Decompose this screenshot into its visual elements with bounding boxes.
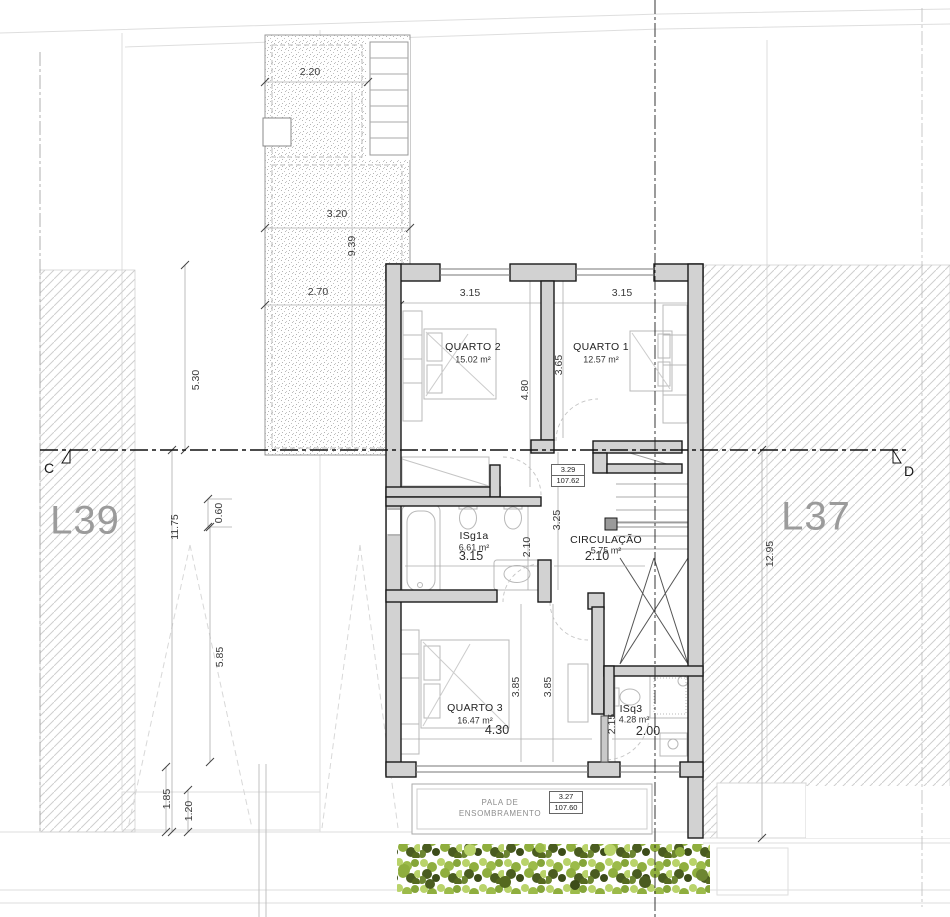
dim-left-5-30: 5.30 [191,370,202,390]
dim-q3-depth1: 3.85 [511,677,522,697]
section-marker-c: C [44,460,54,476]
dim-terrace-length: 9.39 [347,236,358,256]
dim-terrace-width: 2.20 [300,67,320,78]
dim-q3-width: 4.30 [485,724,509,737]
room-label-quarto2: QUARTO 2 [445,342,501,353]
room-area-quarto3: 16.47 m² [457,717,493,726]
floor-plan-drawing [0,0,950,917]
stair-newel-post [605,518,617,530]
lot-label-l39: L39 [50,499,120,544]
section-marker-d: D [904,463,914,479]
room-area-quarto1: 12.57 m² [583,356,619,365]
dim-bath-depth: 2.10 [522,537,533,557]
garden-dashed-marks [128,545,398,828]
level-elevation: 107.60 [550,802,582,813]
floor-plan-page: 2.20 3.20 9.39 2.70 5.30 11.75 0.60 5.85… [0,0,950,917]
hedge [397,843,710,894]
level-elevation: 107.62 [552,475,584,486]
room-label-isq3: ISq3 [620,704,643,715]
room-area-quarto2: 15.02 m² [455,356,491,365]
level-marker-canopy: 3.27 107.60 [549,791,583,814]
room-area-isq3: 4.28 m² [619,716,650,725]
dim-right-12-95: 12.95 [765,541,776,567]
dim-q2-depth: 4.80 [520,380,531,400]
room-area-circulacao: 5.75 m² [591,547,622,556]
dim-isq3-width: 2.00 [636,725,660,738]
dim-left-1-20: 1.20 [184,801,195,821]
room-area-isg1a: 6.61 m² [459,544,490,553]
dim-q2-width: 3.15 [460,288,480,299]
lot-l37-cutout2 [806,786,950,838]
dim-isq3-depth: 2.15 [607,714,618,734]
level-marker-floor: 3.29 107.62 [551,464,585,487]
dim-left-11-75: 11.75 [170,514,181,540]
dim-terrace-width3: 2.70 [308,287,328,298]
terrace-hatch-box [263,118,291,146]
dim-terrace-width2: 3.20 [327,209,347,220]
level-height: 3.27 [550,792,582,802]
dim-corridor-depth: 3.25 [552,510,563,530]
lot-l37-cutout [717,783,806,838]
lot-l39-hatch [40,270,135,832]
room-label-quarto3: QUARTO 3 [447,703,503,714]
lot-l37-hatch [703,265,950,838]
dim-q3-depth2: 3.85 [543,677,554,697]
room-label-quarto1: QUARTO 1 [573,342,629,353]
dim-left-5-85: 5.85 [215,647,226,667]
dim-q1-depth: 3.65 [554,355,565,375]
shade-canopy-label: PALA DE ENSOMBRAMENTO [459,797,541,819]
level-height: 3.29 [552,465,584,475]
dim-left-1-85: 1.85 [162,789,173,809]
dim-left-0-60: 0.60 [214,503,225,523]
room-label-isg1a: ISg1a [460,531,489,542]
terrace-ladder [370,42,408,155]
dim-q1-width: 3.15 [612,288,632,299]
room-label-circulacao: CIRCULAÇÃO [570,535,642,546]
lot-label-l37: L37 [781,495,851,540]
